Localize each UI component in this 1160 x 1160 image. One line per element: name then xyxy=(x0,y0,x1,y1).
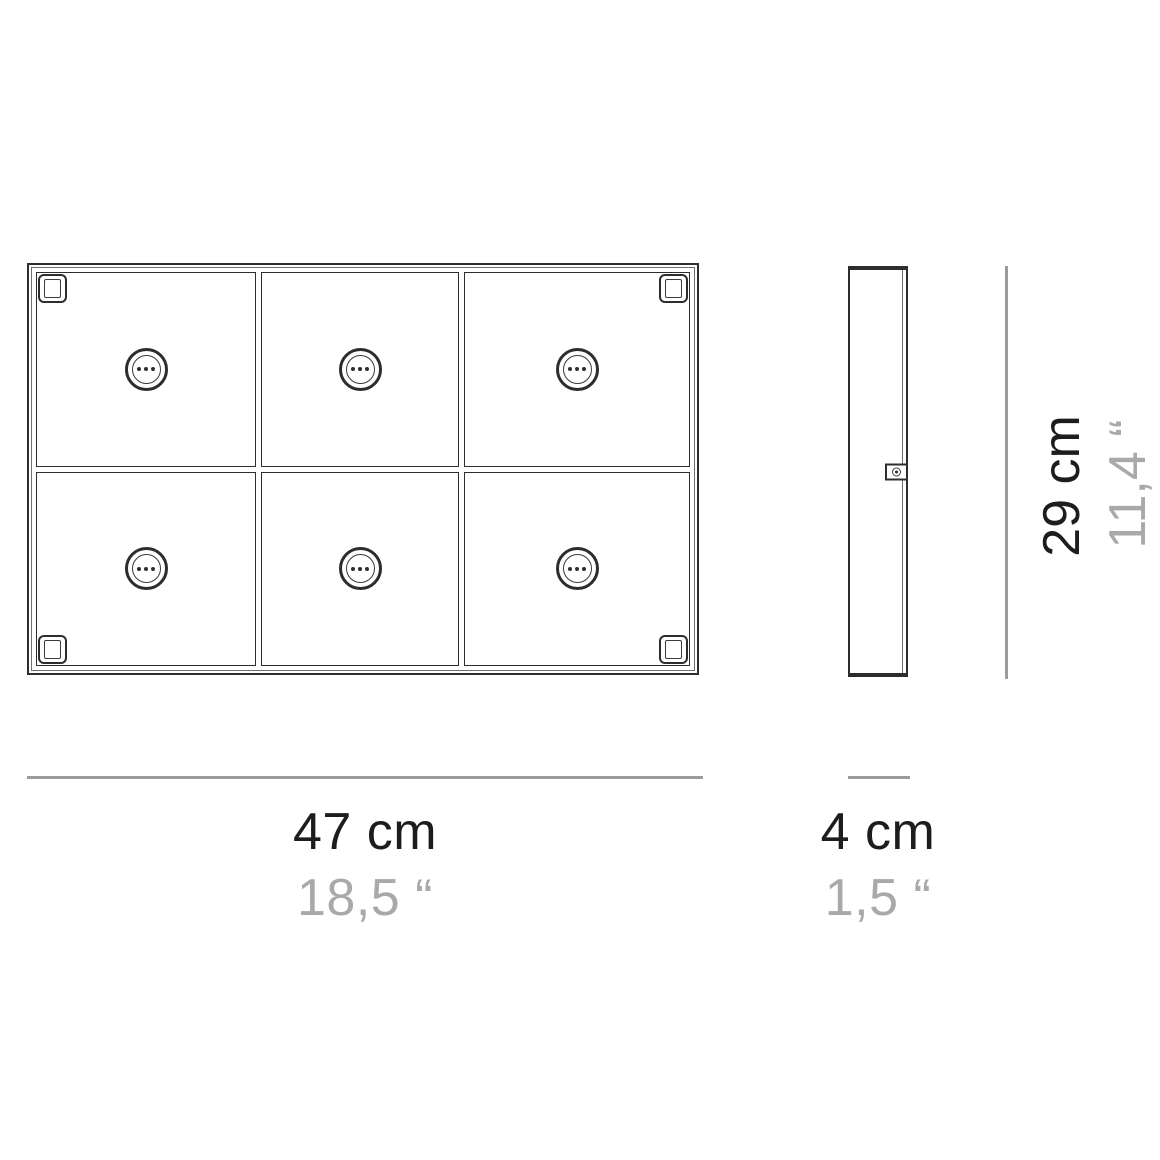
socket-pin-dot xyxy=(575,367,579,371)
socket-pin-dot xyxy=(351,367,355,371)
socket-pin-dot xyxy=(582,567,586,571)
socket-pin-dot xyxy=(582,367,586,371)
socket-pin-dot xyxy=(144,567,148,571)
bracket-inner-plate xyxy=(44,640,61,659)
corner-mount-bracket-icon xyxy=(659,274,688,303)
socket-pin-dot xyxy=(358,367,362,371)
bracket-inner-plate xyxy=(665,640,682,659)
side-mount-knob-icon xyxy=(885,463,908,480)
socket-inner-ring xyxy=(132,355,161,384)
socket-pin-dot xyxy=(365,567,369,571)
height-dimension-line xyxy=(1005,266,1008,679)
socket-pin-dot xyxy=(365,367,369,371)
socket-pin-dot xyxy=(575,567,579,571)
depth-dimension-line xyxy=(848,776,910,779)
front-view-inner-frame xyxy=(31,267,695,671)
corner-mount-bracket-icon xyxy=(659,635,688,664)
front-view-drawing xyxy=(27,263,699,675)
knob-center-dot xyxy=(895,470,898,473)
panel-cell xyxy=(36,272,256,467)
socket-pin-dot xyxy=(568,567,572,571)
socket-connector-icon xyxy=(125,348,168,391)
bracket-inner-plate xyxy=(44,279,61,298)
width-dimension-line xyxy=(27,776,703,779)
height-label-inches: 11,4 “ xyxy=(1102,419,1154,548)
socket-pin-dot xyxy=(151,367,155,371)
socket-inner-ring xyxy=(132,554,161,583)
socket-connector-icon xyxy=(556,547,599,590)
width-label-cm: 47 cm xyxy=(27,806,703,858)
panel-cell xyxy=(261,272,459,467)
knob-circle xyxy=(892,467,901,476)
socket-inner-ring xyxy=(346,554,375,583)
socket-pin-dot xyxy=(144,367,148,371)
corner-mount-bracket-icon xyxy=(38,635,67,664)
width-label-inches: 18,5 “ xyxy=(27,872,703,924)
panel-cell xyxy=(464,272,690,467)
socket-connector-icon xyxy=(339,348,382,391)
socket-pin-dot xyxy=(137,367,141,371)
socket-connector-icon xyxy=(556,348,599,391)
panel-cell xyxy=(36,472,256,667)
depth-label-inches: 1,5 “ xyxy=(808,872,948,924)
socket-pin-dot xyxy=(351,567,355,571)
width-dimension-labels: 47 cm 18,5 “ xyxy=(27,806,703,924)
socket-inner-ring xyxy=(563,355,592,384)
socket-pin-dot xyxy=(151,567,155,571)
socket-connector-icon xyxy=(125,547,168,590)
panel-cell xyxy=(261,472,459,667)
side-view-drawing xyxy=(848,266,908,677)
socket-pin-dot xyxy=(137,567,141,571)
panel-grid xyxy=(36,272,690,666)
socket-inner-ring xyxy=(563,554,592,583)
corner-mount-bracket-icon xyxy=(38,274,67,303)
dimension-drawing-canvas: 47 cm 18,5 “ 4 cm 1,5 “ 29 cm 11,4 “ xyxy=(0,0,1160,1160)
depth-dimension-labels: 4 cm 1,5 “ xyxy=(808,806,948,924)
bracket-inner-plate xyxy=(665,279,682,298)
socket-inner-ring xyxy=(346,355,375,384)
depth-label-cm: 4 cm xyxy=(808,806,948,858)
panel-cell xyxy=(464,472,690,667)
socket-pin-dot xyxy=(358,567,362,571)
socket-connector-icon xyxy=(339,547,382,590)
socket-pin-dot xyxy=(568,367,572,371)
height-label-cm: 29 cm xyxy=(1036,415,1088,557)
